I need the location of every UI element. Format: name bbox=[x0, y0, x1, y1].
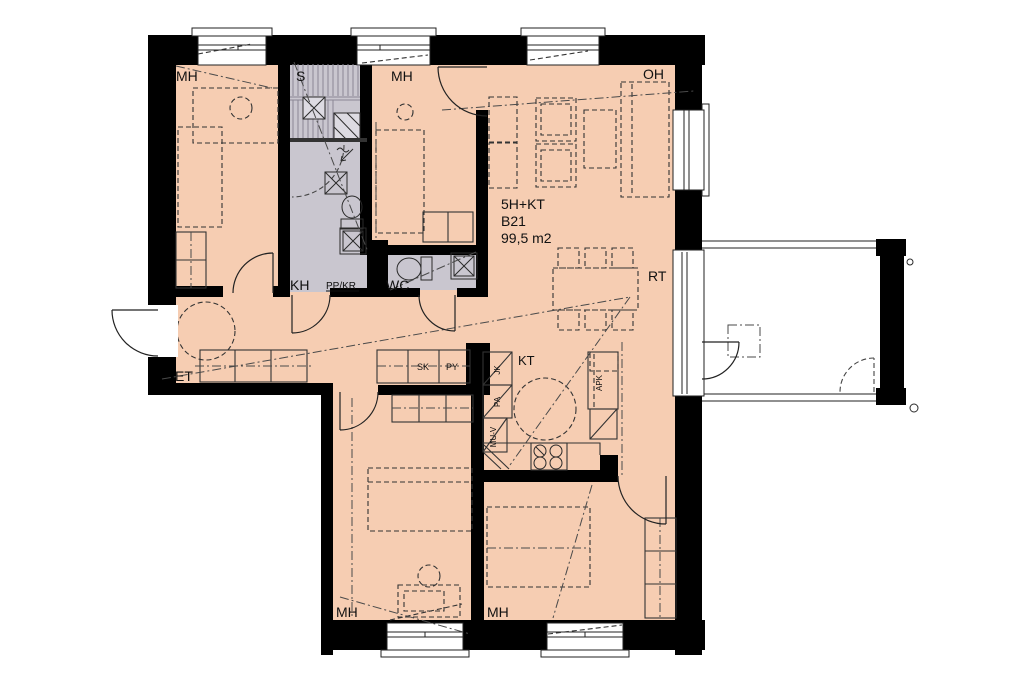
label-bathroom: KH bbox=[290, 277, 309, 293]
label-bedroom-bottomright: MH bbox=[487, 604, 509, 620]
sauna-stove-icon bbox=[334, 113, 360, 140]
label-freezer: PA bbox=[493, 396, 502, 407]
label-sauna: S bbox=[296, 68, 305, 84]
window-bottom-2 bbox=[541, 623, 629, 657]
balcony bbox=[673, 239, 918, 412]
apartment-area: 99,5 m2 bbox=[501, 230, 552, 246]
floorplan-drawing: MH S MH OH 5H+KT B21 99,5 m2 RT KH PP/KR… bbox=[0, 0, 1024, 683]
label-closet: SK bbox=[417, 362, 429, 372]
downpipe-icon bbox=[907, 259, 913, 265]
apartment-unit: B21 bbox=[501, 213, 526, 229]
window-living-right bbox=[673, 104, 709, 196]
sauna-bench-edge bbox=[290, 138, 367, 142]
label-bedroom-bottomleft: MH bbox=[336, 604, 358, 620]
label-bedroom-topmiddle: MH bbox=[391, 68, 413, 84]
sauna-heater-icon bbox=[303, 97, 325, 119]
entry-door bbox=[112, 305, 178, 357]
balcony-floor bbox=[702, 250, 880, 394]
window-top-1 bbox=[192, 28, 272, 65]
label-reserved: MU-V bbox=[489, 426, 498, 447]
label-dishwasher: APK bbox=[595, 374, 604, 391]
apartment-floor bbox=[176, 65, 676, 620]
label-bedroom-topleft: MH bbox=[176, 68, 198, 84]
label-fridge: JK bbox=[493, 365, 502, 375]
label-drying-cabinet: PY bbox=[446, 362, 458, 372]
label-washer-dryer: PP/KR bbox=[326, 281, 356, 292]
label-hall: ET bbox=[175, 368, 193, 384]
window-top-2 bbox=[351, 28, 436, 65]
window-top-3 bbox=[521, 28, 605, 65]
downpipe-icon bbox=[910, 404, 918, 412]
apartment-type: 5H+KT bbox=[501, 196, 545, 212]
balcony-end-wall bbox=[880, 239, 904, 405]
floor-fills bbox=[176, 62, 676, 620]
label-wc: WC bbox=[386, 277, 409, 293]
label-living-room: OH bbox=[643, 66, 664, 82]
label-terrace: RT bbox=[648, 268, 667, 284]
label-kitchen: KT bbox=[518, 353, 535, 368]
floorplan-page: MH S MH OH 5H+KT B21 99,5 m2 RT KH PP/KR… bbox=[0, 0, 1024, 683]
